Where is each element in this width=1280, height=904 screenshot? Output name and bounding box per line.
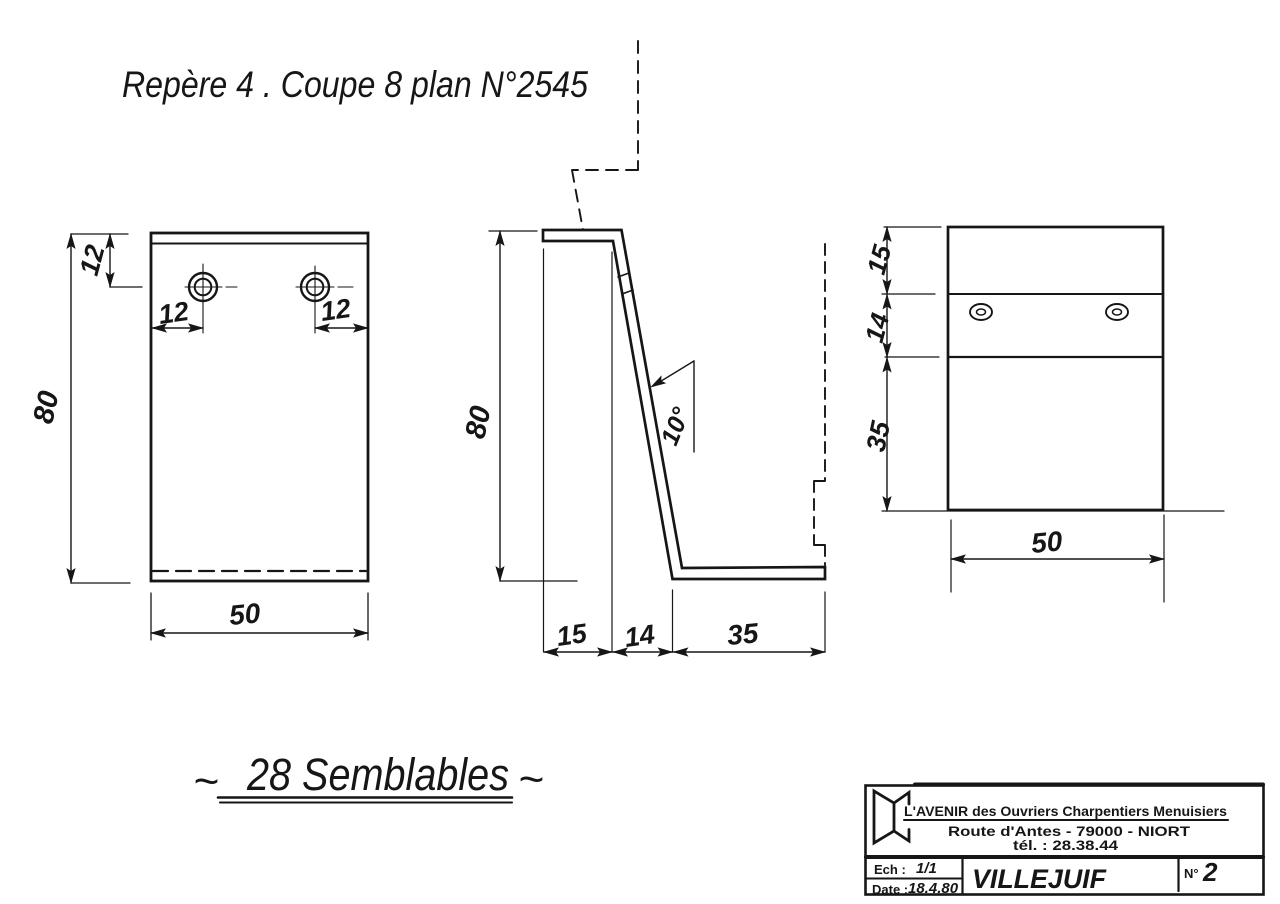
svg-text:N°: N° — [1184, 866, 1199, 881]
svg-text:VILLEJUIF: VILLEJUIF — [972, 864, 1107, 894]
svg-text:15: 15 — [861, 241, 898, 277]
svg-text:12: 12 — [74, 242, 111, 279]
svg-text:tél. : 28.38.44: tél. : 28.38.44 — [1013, 838, 1119, 853]
svg-text:Route d'Antes - 79000 -: Route d'Antes - 79000 - NIORT — [948, 824, 1191, 839]
svg-text:Ech :: Ech : — [874, 862, 906, 877]
svg-text:1/1: 1/1 — [916, 860, 937, 877]
svg-text:2: 2 — [1202, 857, 1218, 887]
svg-text:80: 80 — [460, 403, 498, 441]
svg-text:15: 15 — [555, 618, 590, 652]
svg-text:18.4.80: 18.4.80 — [908, 880, 959, 897]
svg-text:12: 12 — [157, 296, 191, 330]
svg-text:~: ~ — [193, 757, 219, 806]
svg-text:80: 80 — [28, 388, 66, 426]
svg-text:35: 35 — [861, 418, 897, 455]
svg-text:14: 14 — [859, 309, 896, 345]
svg-text:12: 12 — [319, 293, 353, 327]
svg-text:Date :: Date : — [872, 882, 908, 897]
svg-text:Repère 4 . Coupe 8 plan N°2545: Repère 4 . Coupe 8 plan N°2545 — [122, 64, 588, 105]
svg-text:50: 50 — [228, 597, 262, 631]
svg-text:50: 50 — [1030, 525, 1064, 559]
svg-text:35: 35 — [726, 617, 760, 651]
svg-text:L'AVENIR des Ouvriers Charp: L'AVENIR des Ouvriers Charpentiers Menui… — [904, 804, 1227, 819]
svg-text:10°: 10° — [656, 403, 696, 449]
svg-text:~: ~ — [518, 755, 544, 804]
svg-text:28 Semblables: 28 Semblables — [246, 749, 509, 800]
svg-text:14: 14 — [623, 619, 657, 653]
